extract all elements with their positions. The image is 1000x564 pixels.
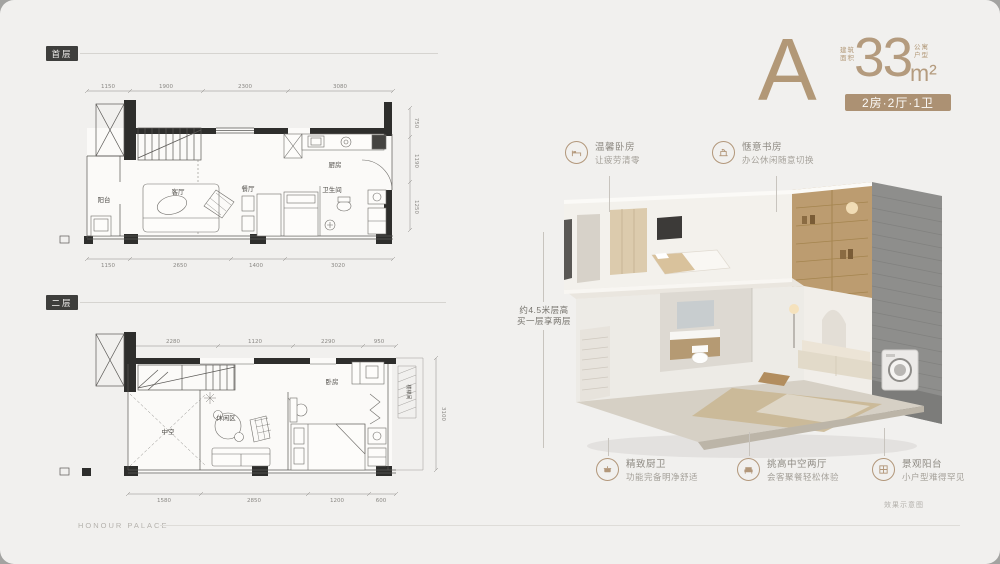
leader-line [609, 176, 610, 212]
room-label-leisure: 休闲区 [216, 413, 236, 422]
dimension-label: 1250 [413, 200, 419, 214]
room-label-balcony: 阳台 [98, 195, 111, 204]
sofa-icon [737, 458, 760, 481]
bed-icon [565, 141, 588, 164]
dimension-label: 3080 [333, 84, 347, 90]
dimension-label: 600 [376, 498, 387, 504]
unit-type-badge: 2房·2厅·1卫 [845, 94, 951, 111]
first-floor-badge: 首层 [46, 46, 78, 61]
dimension-label: 1200 [330, 498, 344, 504]
divider [80, 53, 438, 54]
dimension-label: 1120 [248, 339, 262, 345]
dimension-label: 2290 [321, 339, 335, 345]
dimension-label: 3100 [440, 407, 446, 421]
unit-caption: 公寓 户型 [914, 44, 929, 60]
divider [80, 302, 446, 303]
area-value: 33 [854, 30, 911, 85]
room-label-void: 中空 [162, 427, 176, 436]
window-icon [872, 458, 895, 481]
dimension-label: 1190 [413, 154, 419, 168]
area-caption: 建筑 面积 [840, 47, 855, 63]
room-label-dining: 餐厅 [242, 184, 256, 193]
annotation-desc: 让疲劳清零 [595, 154, 640, 166]
page: 首层 1150 1900 2300 3080 1150 2650 1400 30… [0, 0, 1000, 564]
dimension-label: 1400 [249, 263, 263, 269]
annotation-desc: 办公休闲随意切换 [742, 154, 814, 166]
leader-line [608, 438, 609, 456]
annotation-title: 温馨卧房 [595, 141, 640, 154]
annotation-title: 精致厨卫 [626, 458, 698, 471]
annotation-title: 惬意书房 [742, 141, 814, 154]
dimension-label: 2300 [238, 84, 252, 90]
dimension-label: 750 [413, 118, 419, 129]
leader-line [884, 428, 885, 456]
annotation-title: 挑高中空两厅 [767, 458, 839, 471]
annotation-kitchen-bath: 精致厨卫 功能完备明净舒适 [596, 458, 698, 483]
desk-icon [712, 141, 735, 164]
annotation-balcony: 景观阳台 小户型难得罕见 [872, 458, 965, 483]
annotation-desc: 功能完备明净舒适 [626, 471, 698, 483]
leader-line [543, 232, 544, 302]
render-caption: 效果示意图 [884, 500, 924, 510]
annotation-bedroom: 温馨卧房 让疲劳清零 [565, 141, 640, 166]
annotation-desc: 小户型难得罕见 [902, 471, 965, 483]
second-floor-badge: 二层 [46, 295, 78, 310]
annotation-living: 挑高中空两厅 会客聚餐轻松体验 [737, 458, 839, 483]
annotation-study: 惬意书房 办公休闲随意切换 [712, 141, 814, 166]
leader-line [543, 330, 544, 448]
divider [160, 525, 960, 526]
room-label-living: 客厅 [172, 187, 186, 196]
area-unit: m² [910, 60, 937, 87]
dimension-label: 1900 [159, 84, 173, 90]
kitchen-icon [596, 458, 619, 481]
plan-letter: A [758, 26, 817, 114]
floorplan-first-floor: 1150 1900 2300 3080 1150 2650 1400 3020 … [58, 78, 450, 270]
dimension-label: 2850 [247, 498, 261, 504]
dimension-label: 1580 [157, 498, 171, 504]
apartment-render [552, 180, 947, 470]
room-label-stairwell: 楼梯间 [405, 384, 412, 399]
room-label-kitchen: 厨房 [329, 160, 342, 169]
dimension-label: 950 [374, 339, 385, 345]
dimension-label: 3020 [331, 263, 345, 269]
watermark: HONOUR PALACE [78, 521, 168, 530]
dimension-label: 1150 [101, 263, 115, 269]
annotation-title: 景观阳台 [902, 458, 965, 471]
floorplan-second-floor: 2280 1120 2290 950 1580 2850 1200 600 31… [58, 318, 462, 522]
room-label-bathroom: 卫生间 [322, 185, 342, 194]
dimension-label: 2280 [166, 339, 180, 345]
height-note: 约4.5米层高 买一层享两层 [504, 305, 584, 327]
room-label-bedroom: 卧房 [326, 377, 339, 386]
leader-line [749, 432, 750, 456]
annotation-desc: 会客聚餐轻松体验 [767, 471, 839, 483]
dimension-label: 1150 [101, 84, 115, 90]
dimension-label: 2650 [173, 263, 187, 269]
leader-line [776, 176, 777, 212]
